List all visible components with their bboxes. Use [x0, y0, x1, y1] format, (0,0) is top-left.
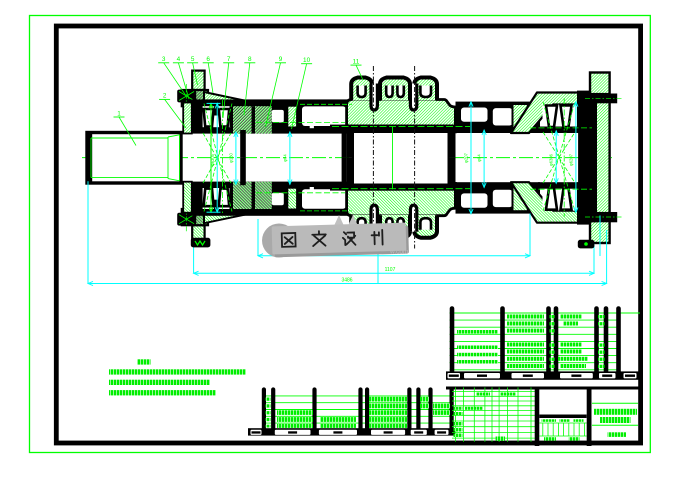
svg-text:φ207: φ207 — [463, 152, 468, 162]
svg-text:φ6207: φ6207 — [568, 153, 573, 166]
svg-text:4: 4 — [177, 56, 181, 63]
svg-text:3: 3 — [162, 56, 166, 63]
svg-text:8: 8 — [248, 56, 252, 63]
svg-text:2: 2 — [163, 93, 167, 100]
svg-text:φ6306: φ6306 — [549, 153, 554, 166]
svg-text:11: 11 — [353, 58, 360, 65]
svg-text:7: 7 — [227, 56, 231, 63]
svg-text:w.com: w.com — [389, 249, 408, 256]
svg-text:3486: 3486 — [341, 278, 352, 284]
svg-text:φ64: φ64 — [282, 154, 287, 162]
svg-text:10: 10 — [303, 57, 311, 64]
svg-text:φ130: φ130 — [229, 152, 234, 162]
svg-text:1: 1 — [117, 110, 121, 117]
svg-text:1107: 1107 — [385, 267, 396, 273]
svg-text:φ84: φ84 — [477, 154, 482, 162]
svg-text:9: 9 — [279, 56, 283, 63]
svg-text:5: 5 — [191, 56, 195, 63]
svg-text:φ6305: φ6305 — [210, 153, 215, 166]
svg-text:6: 6 — [206, 56, 210, 63]
